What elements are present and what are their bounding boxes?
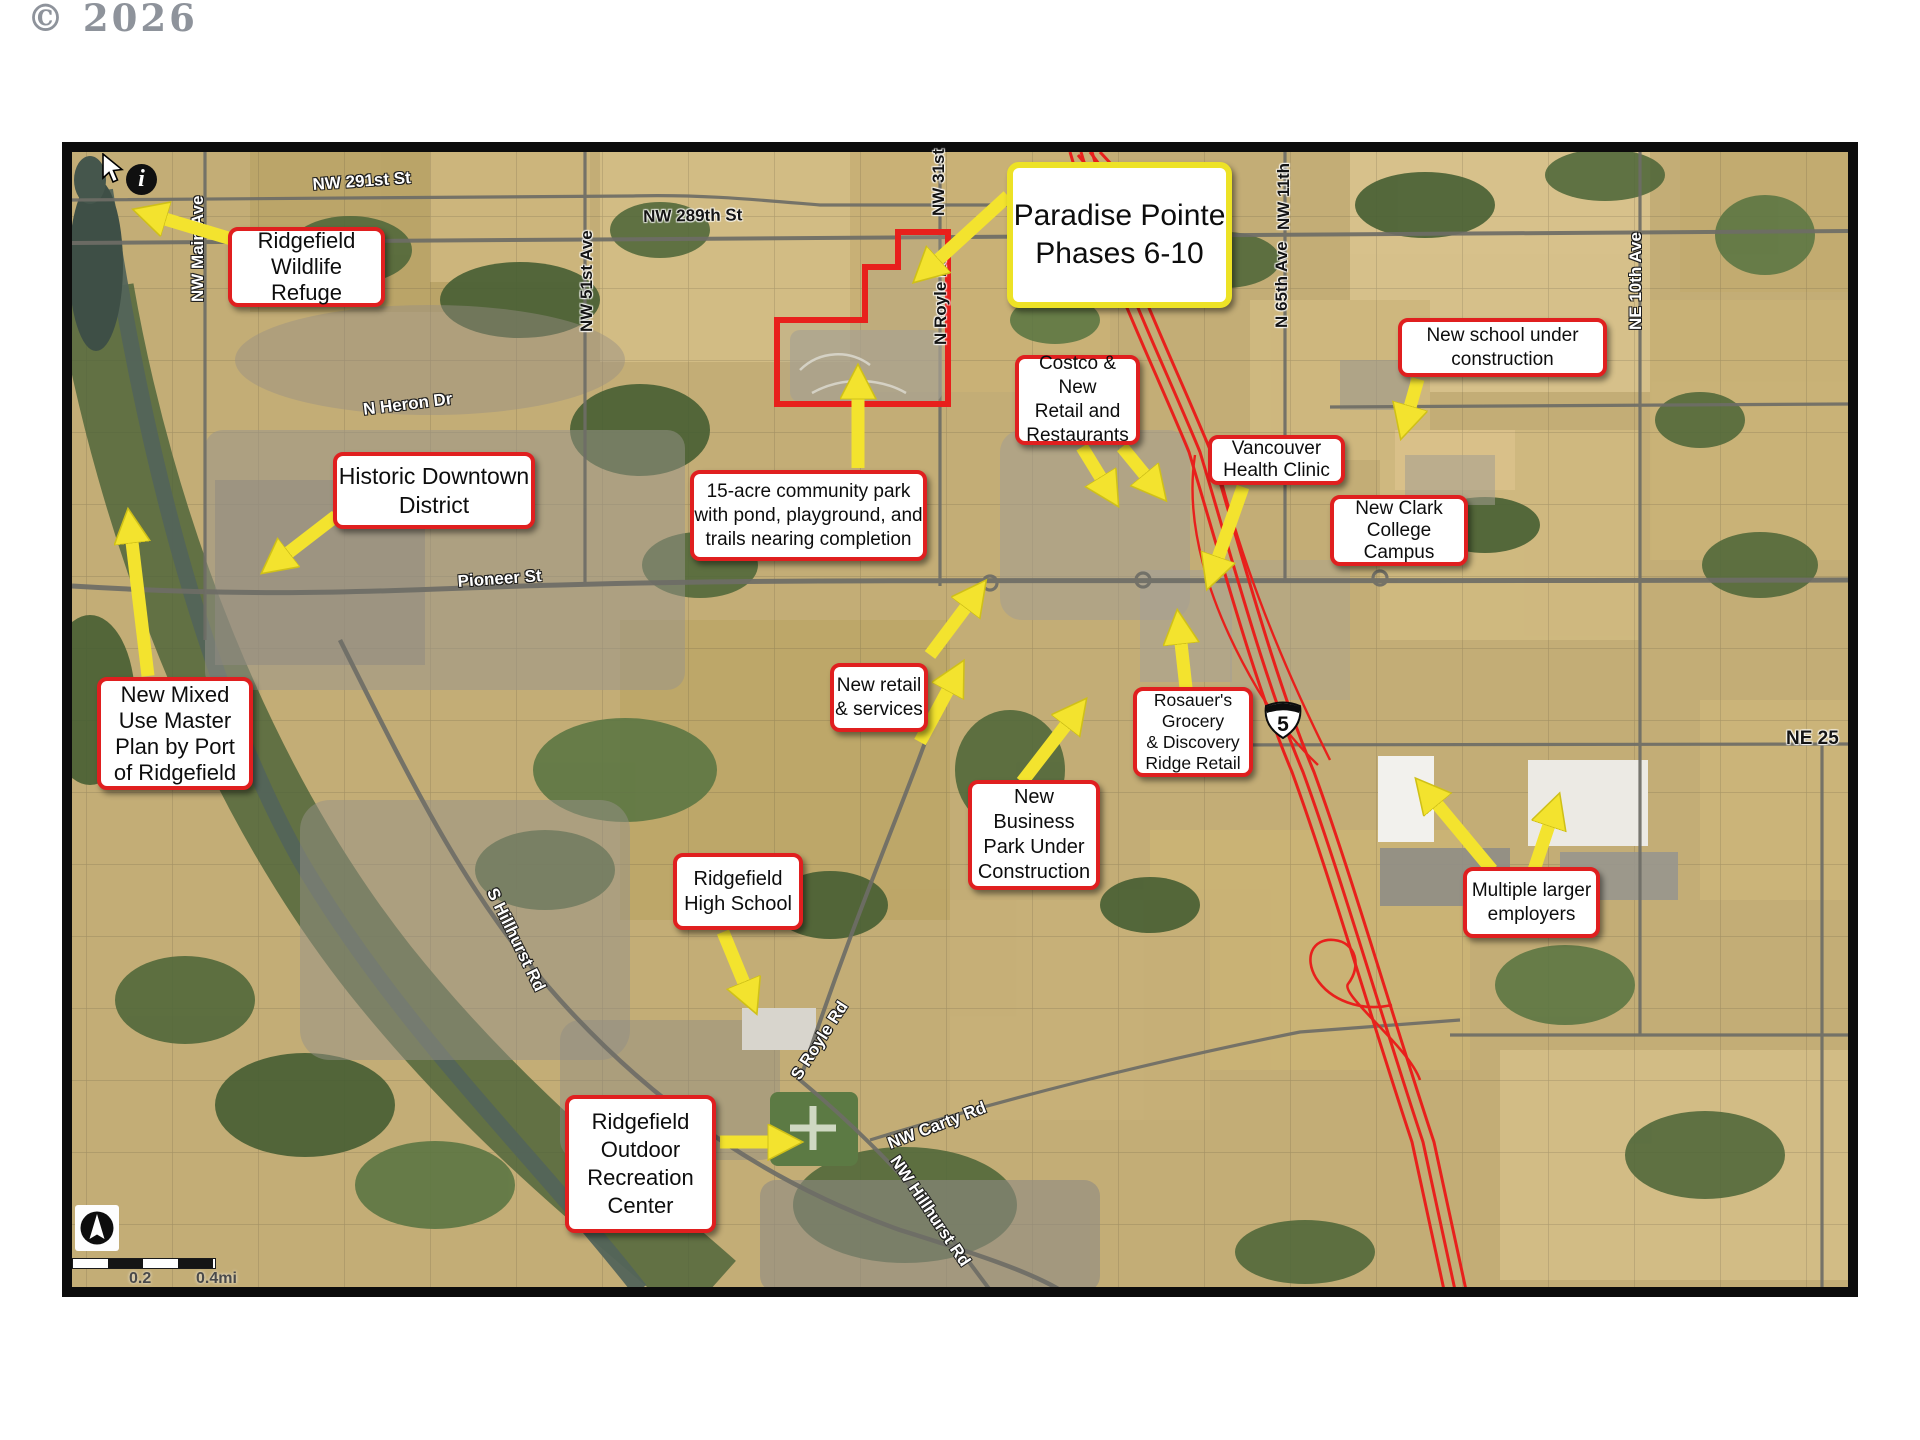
callout-costco-retail: Costco & New Retail and Restaurants [1015, 355, 1140, 445]
callout-wildlife-refuge: Ridgefield Wildlife Refuge [228, 227, 385, 307]
street-label: NE 10th Ave [1626, 232, 1646, 330]
copyright-watermark: © 2026 [27, 0, 198, 40]
callout-rosauers: Rosauer's Grocery & Discovery Ridge Reta… [1133, 687, 1253, 777]
street-label: NW 11th [1274, 163, 1294, 230]
callout-clark-college: New Clark College Campus [1330, 495, 1468, 566]
compass-icon[interactable] [75, 1205, 119, 1251]
scale-bar [72, 1258, 216, 1269]
street-label: NE 25 [1786, 728, 1839, 750]
street-label: N Royle Rd [931, 254, 951, 345]
scale-label-02: 0.2 [129, 1270, 151, 1288]
street-label: NW 31st [929, 149, 949, 216]
street-label: N 65th Ave [1272, 241, 1292, 328]
callout-vancouver-clinic: Vancouver Health Clinic [1208, 435, 1345, 485]
page: © 2026 [0, 0, 1920, 1440]
callout-business-park: New Business Park Under Construction [968, 780, 1100, 890]
callout-new-retail: New retail & services [830, 663, 928, 732]
callout-historic-downtown: Historic Downtown District [333, 452, 535, 529]
street-label: NW 289th St [643, 205, 743, 227]
street-label: NW 51st Ave [577, 230, 597, 332]
callout-recreation-center: Ridgefield Outdoor Recreation Center [565, 1095, 716, 1233]
shield-number: 5 [1277, 713, 1289, 736]
callout-paradise-pointe: Paradise Pointe Phases 6-10 [1007, 162, 1232, 308]
street-label: NW Main Ave [188, 196, 208, 302]
scale-label-04: 0.4mi [196, 1270, 237, 1288]
callout-high-school: Ridgefield High School [673, 853, 803, 930]
callout-employers: Multiple larger employers [1463, 867, 1600, 938]
mouse-cursor-icon [101, 153, 125, 190]
info-icon[interactable]: i [126, 164, 157, 195]
callout-community-park: 15-acre community park with pond, playgr… [690, 470, 927, 561]
callout-mixed-use: New Mixed Use Master Plan by Port of Rid… [97, 677, 253, 790]
callout-new-school: New school under construction [1398, 318, 1607, 377]
